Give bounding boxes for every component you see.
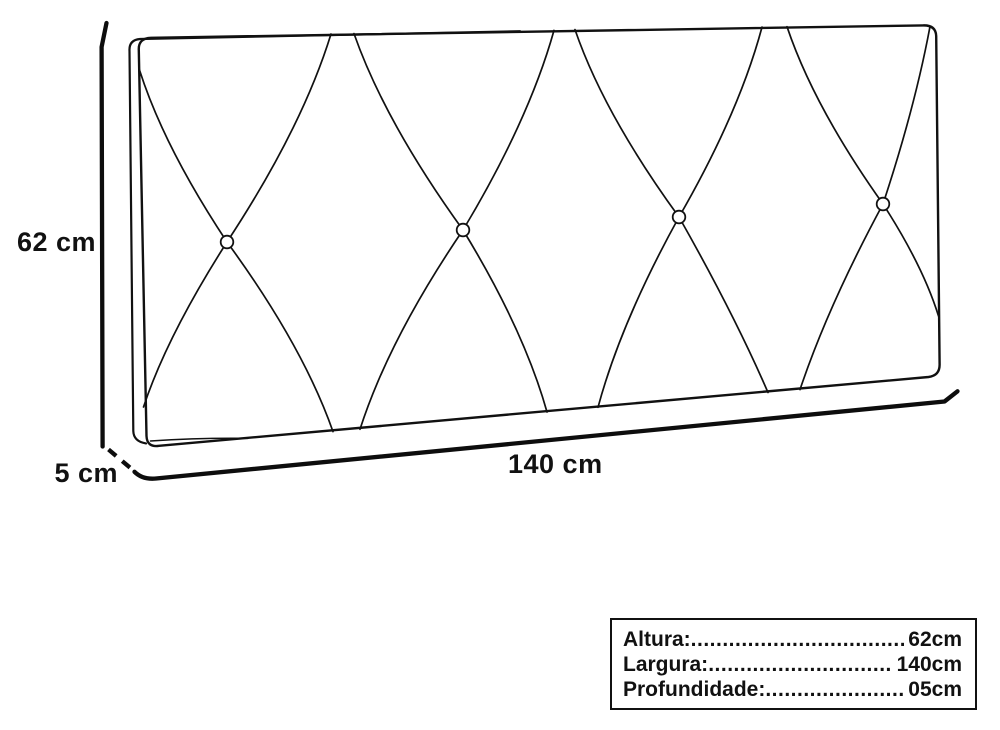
headboard-depth-edge [129, 31, 520, 443]
spec-row-largura: Largura: ...............................… [623, 652, 962, 677]
headboard-outline [139, 25, 940, 446]
tufting-pattern [140, 27, 939, 432]
depth-dimension-label: 5 cm [36, 458, 118, 489]
tuft-buttons [221, 198, 890, 249]
tuft-button [457, 224, 470, 237]
spec-row-profundidade: Profundidade: ..........................… [623, 677, 962, 702]
leader-dots: ........................................… [765, 677, 904, 702]
dimension-line-height [102, 23, 107, 447]
width-dimension-label: 140 cm [508, 449, 603, 480]
tuft-button [673, 211, 686, 224]
headboard-dimension-diagram: 62 cm 5 cm 140 cm Altura: ..............… [0, 0, 1000, 730]
spec-label: Profundidade: [623, 677, 765, 702]
spec-table: Altura: ................................… [610, 618, 977, 710]
tuft-button [877, 198, 890, 211]
spec-value: 140cm [897, 652, 962, 677]
leader-dots: ........................................… [708, 652, 892, 677]
spec-row-altura: Altura: ................................… [623, 627, 962, 652]
spec-label: Altura: [623, 627, 691, 652]
leader-dots: ........................................… [691, 627, 905, 652]
spec-value: 05cm [908, 677, 962, 702]
height-dimension-label: 62 cm [17, 227, 96, 258]
tuft-button [221, 236, 234, 249]
spec-value: 62cm [908, 627, 962, 652]
spec-label: Largura: [623, 652, 708, 677]
